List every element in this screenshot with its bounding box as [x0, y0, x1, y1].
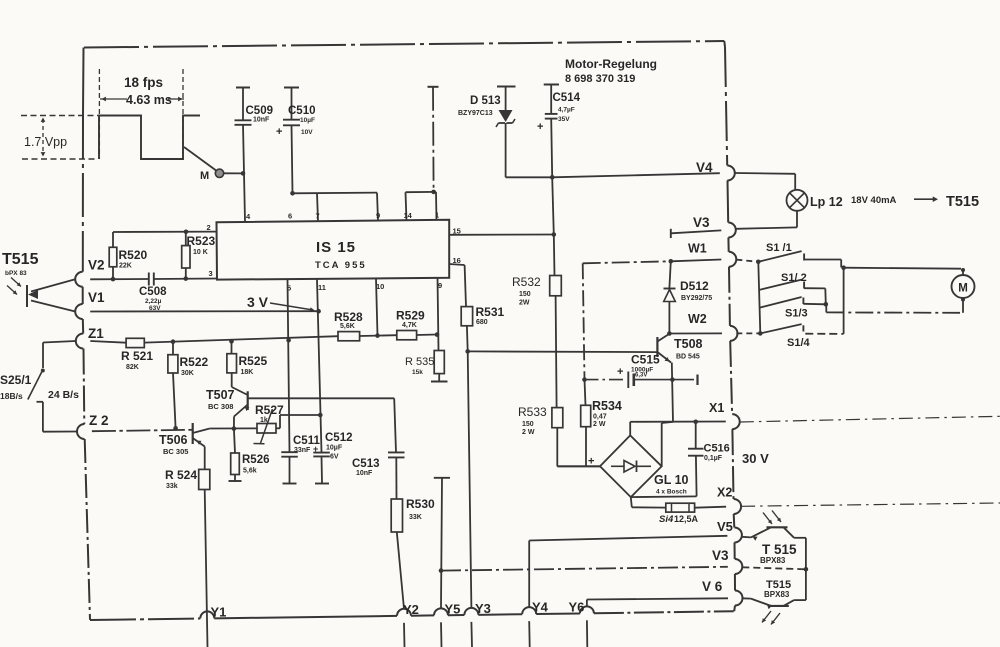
svg-text:R533: R533 — [518, 405, 547, 419]
svg-text:BD 545: BD 545 — [676, 354, 700, 361]
svg-text:S25/1: S25/1 — [0, 373, 32, 387]
svg-text:C513: C513 — [352, 458, 380, 470]
svg-text:C514: C514 — [553, 92, 581, 104]
svg-text:R526: R526 — [242, 454, 270, 466]
svg-text:BC 308: BC 308 — [208, 402, 233, 411]
svg-text:14: 14 — [404, 211, 413, 220]
svg-text:BPX83: BPX83 — [764, 590, 790, 599]
svg-text:V2: V2 — [88, 258, 105, 273]
svg-text:5,6k: 5,6k — [243, 468, 257, 475]
svg-text:Y5: Y5 — [445, 601, 461, 616]
svg-text:IS 15: IS 15 — [316, 239, 356, 256]
svg-text:3 V: 3 V — [247, 294, 269, 310]
svg-text:C509: C509 — [246, 105, 274, 117]
svg-text:S1/4: S1/4 — [787, 337, 811, 349]
svg-text:22K: 22K — [119, 263, 132, 270]
svg-text:6: 6 — [288, 212, 292, 221]
svg-text:W1: W1 — [688, 242, 707, 256]
svg-text:82K: 82K — [126, 364, 139, 371]
svg-text:GL 10: GL 10 — [654, 473, 689, 487]
svg-text:1.7 Vpp: 1.7 Vpp — [24, 135, 67, 149]
svg-text:R 535: R 535 — [405, 356, 434, 368]
svg-text:33k: 33k — [166, 483, 178, 490]
svg-text:W2: W2 — [688, 312, 707, 326]
svg-text:V3: V3 — [712, 548, 729, 563]
svg-text:M: M — [200, 170, 209, 182]
svg-text:R532: R532 — [512, 275, 541, 289]
svg-text:18K: 18K — [241, 369, 254, 376]
svg-text:15k: 15k — [412, 369, 423, 376]
svg-text:S1/3: S1/3 — [785, 308, 808, 320]
svg-text:Y3: Y3 — [475, 601, 491, 616]
svg-text:4: 4 — [246, 212, 251, 221]
svg-text:30K: 30K — [181, 370, 194, 377]
svg-text:T 515: T 515 — [762, 542, 797, 557]
svg-text:10nF: 10nF — [253, 117, 270, 124]
svg-text:+: + — [617, 366, 623, 378]
svg-text:C512: C512 — [325, 432, 353, 444]
svg-text:BZY97C13: BZY97C13 — [458, 110, 493, 117]
svg-text:150: 150 — [522, 421, 534, 428]
svg-text:Si4: Si4 — [659, 514, 674, 525]
svg-text:18 fps: 18 fps — [124, 75, 163, 90]
svg-text:V4: V4 — [696, 160, 713, 175]
svg-text:BY292/75: BY292/75 — [681, 295, 712, 302]
svg-text:M: M — [958, 283, 968, 295]
svg-text:TCA 955: TCA 955 — [315, 260, 367, 271]
svg-text:12,5A: 12,5A — [674, 514, 699, 524]
svg-text:C515: C515 — [631, 353, 660, 367]
svg-text:Lp 12: Lp 12 — [810, 195, 843, 209]
svg-text:X1: X1 — [709, 401, 724, 415]
svg-text:Z1: Z1 — [88, 326, 104, 341]
svg-text:680: 680 — [476, 319, 488, 326]
svg-text:3: 3 — [209, 269, 213, 278]
svg-text:4,7µF: 4,7µF — [558, 107, 575, 114]
svg-text:1: 1 — [435, 211, 439, 220]
svg-text:33K: 33K — [409, 514, 422, 521]
svg-text:5,6K: 5,6K — [340, 323, 355, 330]
svg-text:6V: 6V — [330, 454, 339, 461]
svg-text:X2: X2 — [717, 486, 732, 500]
svg-text:Y2: Y2 — [403, 602, 419, 617]
svg-text:0,1µF: 0,1µF — [704, 455, 723, 462]
svg-text:+: + — [537, 121, 543, 133]
svg-text:R528: R528 — [334, 310, 363, 324]
svg-text:R 524: R 524 — [165, 468, 197, 482]
svg-text:C510: C510 — [288, 105, 316, 117]
svg-text:D512: D512 — [680, 279, 709, 293]
svg-text:T515: T515 — [2, 251, 39, 268]
svg-text:8 698 370 319: 8 698 370 319 — [565, 73, 635, 85]
svg-text:24 B/s: 24 B/s — [48, 389, 79, 401]
svg-text:BC 305: BC 305 — [163, 447, 188, 456]
svg-text:R527: R527 — [255, 403, 284, 417]
svg-text:+: + — [276, 126, 282, 138]
svg-text:1k: 1k — [260, 417, 268, 424]
svg-text:R523: R523 — [187, 234, 216, 248]
svg-text:18B/s: 18B/s — [0, 391, 23, 401]
svg-text:bPX 83: bPX 83 — [5, 270, 27, 277]
svg-text:V5: V5 — [717, 519, 733, 534]
svg-text:V 6: V 6 — [702, 579, 723, 594]
svg-text:T508: T508 — [674, 337, 703, 351]
svg-text:Y1: Y1 — [211, 605, 227, 620]
svg-text:R525: R525 — [239, 354, 268, 368]
svg-text:R530: R530 — [406, 497, 435, 511]
svg-text:R520: R520 — [119, 248, 148, 262]
svg-text:7: 7 — [316, 212, 320, 221]
svg-text:Motor-Regelung: Motor-Regelung — [565, 57, 657, 71]
svg-text:6,3V: 6,3V — [635, 373, 647, 379]
svg-text:T507: T507 — [206, 388, 235, 402]
svg-text:R522: R522 — [180, 355, 209, 369]
svg-text:10 K: 10 K — [193, 249, 208, 256]
svg-text:V1: V1 — [88, 290, 105, 305]
svg-text:R529: R529 — [396, 309, 425, 323]
svg-text:S1 /1: S1 /1 — [766, 242, 792, 254]
svg-text:4 x Bosch: 4 x Bosch — [656, 489, 687, 496]
svg-text:4.63 ms: 4.63 ms — [126, 93, 172, 107]
svg-text:33nF: 33nF — [294, 447, 311, 454]
svg-text:C508: C508 — [139, 286, 167, 298]
svg-text:2 W: 2 W — [593, 421, 606, 428]
svg-text:R531: R531 — [476, 305, 505, 319]
svg-text:Y4: Y4 — [532, 600, 549, 615]
svg-text:4,7K: 4,7K — [402, 322, 417, 329]
svg-text:2W: 2W — [519, 300, 530, 307]
svg-text:T506: T506 — [159, 433, 188, 447]
svg-text:Y6: Y6 — [569, 600, 585, 615]
svg-text:2,22µ: 2,22µ — [145, 298, 162, 305]
svg-text:T515: T515 — [946, 194, 979, 210]
svg-text:9: 9 — [376, 211, 380, 220]
svg-text:Z 2: Z 2 — [89, 413, 109, 428]
svg-text:10: 10 — [376, 282, 384, 291]
svg-text:0,47: 0,47 — [593, 414, 607, 421]
svg-text:10µF: 10µF — [300, 117, 315, 124]
svg-text:10V: 10V — [301, 129, 313, 136]
svg-text:+: + — [313, 444, 318, 454]
svg-text:30 V: 30 V — [742, 451, 769, 466]
svg-text:9: 9 — [438, 281, 442, 290]
svg-text:18V 40mA: 18V 40mA — [851, 195, 897, 206]
svg-text:2: 2 — [207, 223, 211, 232]
svg-text:BPX83: BPX83 — [760, 556, 786, 565]
svg-text:D 513: D 513 — [470, 95, 501, 107]
svg-text:2 W: 2 W — [522, 429, 535, 436]
svg-text:S1/ 2: S1/ 2 — [781, 272, 807, 284]
svg-text:R534: R534 — [592, 399, 622, 413]
svg-text:10nF: 10nF — [356, 470, 373, 477]
svg-text:V3: V3 — [693, 215, 710, 230]
svg-text:10µF: 10µF — [326, 445, 343, 452]
svg-text:11: 11 — [318, 283, 326, 292]
svg-text:150: 150 — [519, 291, 531, 298]
svg-text:R 521: R 521 — [121, 349, 153, 363]
svg-text:35V: 35V — [558, 116, 570, 123]
svg-text:C516: C516 — [704, 443, 730, 455]
